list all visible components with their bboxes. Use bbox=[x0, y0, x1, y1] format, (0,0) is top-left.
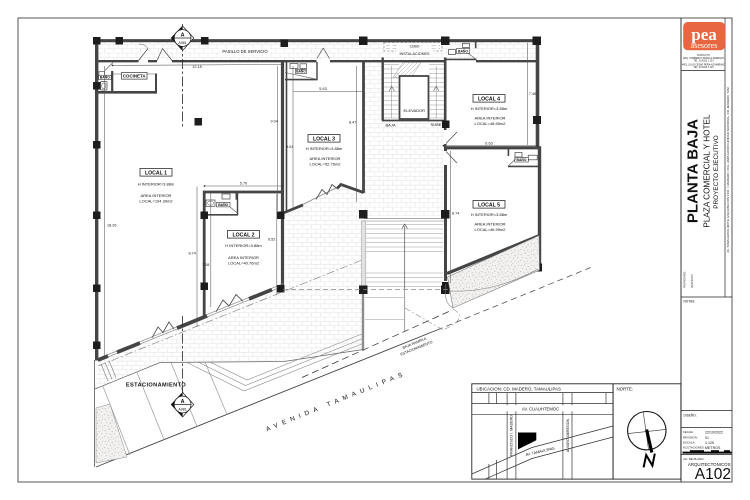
svg-text:1:125: 1:125 bbox=[705, 441, 714, 445]
svg-text:PROYECTO EJECUTIVO: PROYECTO EJECUTIVO bbox=[713, 135, 720, 208]
svg-text:PLAZA COMERCIAL Y HOTEL: PLAZA COMERCIAL Y HOTEL bbox=[703, 114, 712, 228]
svg-text:AREA INTERIOR: AREA INTERIOR bbox=[228, 255, 259, 260]
svg-text:LOCAL 2: LOCAL 2 bbox=[232, 232, 254, 238]
svg-text:AV. TAMAULIPAS 300TE, ESQUINA: AV. TAMAULIPAS 300TE, ESQUINA CON FCO. I… bbox=[726, 87, 730, 253]
svg-text:UBICACION: CD. MADERO, TAMAULI: UBICACION: CD. MADERO, TAMAULIPAS bbox=[477, 386, 561, 391]
svg-text:LOCAL=52.76m2: LOCAL=52.76m2 bbox=[309, 161, 341, 166]
svg-text:TEL: 33 8311 1 123: TEL: 33 8311 1 123 bbox=[693, 61, 714, 63]
svg-text:ARQ. JULIO CESAR PEÑA ALTAMIRA: ARQ. JULIO CESAR PEÑA ALTAMIRANO bbox=[682, 63, 725, 66]
svg-text:H INTERIOR=3.88m: H INTERIOR=3.88m bbox=[225, 243, 262, 248]
svg-text:PROPIETARIO:: PROPIETARIO: bbox=[684, 271, 687, 288]
svg-text:AREA INTERIOR: AREA INTERIOR bbox=[310, 156, 341, 161]
svg-text:TEL: 33 8123 4 123: TEL: 33 8123 4 123 bbox=[693, 67, 714, 69]
svg-text:INSTALACIONES: INSTALACIONES bbox=[399, 52, 430, 56]
svg-text:ELEVADOR: ELEVADOR bbox=[404, 108, 426, 113]
svg-text:ESCALA:: ESCALA: bbox=[683, 441, 695, 445]
svg-text:BAÑO: BAÑO bbox=[100, 75, 110, 80]
svg-text:8.47: 8.47 bbox=[349, 121, 356, 125]
svg-text:AREA INTERIOR: AREA INTERIOR bbox=[475, 116, 506, 121]
svg-text:REVISION:: REVISION: bbox=[683, 436, 698, 440]
svg-text:A: A bbox=[181, 399, 185, 405]
svg-text:H INTERIOR=3.88m: H INTERIOR=3.88m bbox=[471, 212, 508, 217]
svg-text:PROYECTO:: PROYECTO: bbox=[691, 274, 694, 288]
svg-text:SUBE: SUBE bbox=[431, 122, 442, 127]
svg-text:AREA INTERIOR: AREA INTERIOR bbox=[475, 222, 506, 227]
svg-text:CONTACTO:: CONTACTO: bbox=[697, 54, 711, 57]
svg-text:H INTERIOR=3.88m: H INTERIOR=3.88m bbox=[306, 146, 343, 151]
svg-text:DISEÑO:: DISEÑO: bbox=[684, 413, 697, 418]
svg-text:H INTERIOR=3.88m: H INTERIOR=3.88m bbox=[471, 106, 508, 111]
svg-text:LOCAL 3: LOCAL 3 bbox=[313, 136, 335, 142]
svg-text:COCINETA: COCINETA bbox=[123, 74, 146, 79]
svg-text:ESTACIONAMIENTO: ESTACIONAMIENTO bbox=[126, 383, 186, 389]
svg-text:ARQ. HUMBERTO PADILLA SERRANO: ARQ. HUMBERTO PADILLA SERRANO bbox=[683, 57, 724, 60]
svg-text:No. DE PLANO:: No. DE PLANO: bbox=[684, 457, 705, 461]
svg-text:7.08: 7.08 bbox=[202, 263, 209, 267]
svg-text:LOCAL 4: LOCAL 4 bbox=[478, 96, 500, 102]
svg-text:BAÑO: BAÑO bbox=[218, 202, 228, 207]
svg-text:12.18: 12.18 bbox=[192, 65, 202, 69]
svg-text:9.04: 9.04 bbox=[286, 145, 293, 149]
svg-text:01: 01 bbox=[705, 436, 709, 440]
svg-text:LOCAL 1: LOCAL 1 bbox=[145, 170, 167, 176]
svg-text:LOCAL=48.55m2: LOCAL=48.55m2 bbox=[474, 121, 506, 126]
svg-text:AREA INTERIOR: AREA INTERIOR bbox=[141, 193, 172, 198]
svg-text:LOCAL=194.39m2: LOCAL=194.39m2 bbox=[139, 199, 173, 204]
svg-text:22/10/2022: 22/10/2022 bbox=[705, 430, 723, 434]
svg-text:BAÑO: BAÑO bbox=[296, 69, 306, 74]
svg-text:LOCAL 5: LOCAL 5 bbox=[478, 202, 500, 208]
svg-text:LOCAL=40.76m2: LOCAL=40.76m2 bbox=[228, 260, 260, 265]
svg-text:BAJA: BAJA bbox=[385, 123, 395, 128]
svg-text:H INTERIOR=3.88m: H INTERIOR=3.88m bbox=[138, 181, 175, 186]
svg-text:A981: A981 bbox=[178, 408, 186, 412]
svg-text:PLANTA BAJA: PLANTA BAJA bbox=[685, 119, 702, 223]
svg-text:5.63: 5.63 bbox=[319, 87, 326, 91]
svg-text:8.74: 8.74 bbox=[452, 212, 459, 216]
svg-text:ACOTACIONES:: ACOTACIONES: bbox=[683, 446, 705, 450]
svg-text:AV. CUAUHTEMOC: AV. CUAUHTEMOC bbox=[522, 406, 559, 411]
svg-text:CUBO: CUBO bbox=[410, 45, 420, 49]
svg-text:METROS: METROS bbox=[705, 446, 721, 450]
svg-text:BAÑO: BAÑO bbox=[458, 48, 468, 53]
svg-text:ALVARO OBREGON: ALVARO OBREGON bbox=[566, 418, 570, 452]
svg-text:18.26: 18.26 bbox=[107, 224, 117, 228]
svg-text:FRANCISCO I. MADERO: FRANCISCO I. MADERO bbox=[510, 415, 514, 456]
svg-text:FECHA:: FECHA: bbox=[683, 430, 694, 434]
svg-text:asesores: asesores bbox=[691, 41, 718, 50]
svg-text:LOCAL=46.99m2: LOCAL=46.99m2 bbox=[474, 227, 506, 232]
svg-text:PASILLO DE SERVICIO: PASILLO DE SERVICIO bbox=[222, 49, 268, 54]
svg-text:A: A bbox=[181, 32, 185, 38]
svg-text:BAÑO: BAÑO bbox=[517, 157, 527, 162]
svg-text:6.63: 6.63 bbox=[485, 142, 492, 146]
svg-text:NOTAS:: NOTAS: bbox=[684, 300, 696, 304]
svg-text:7.46: 7.46 bbox=[529, 92, 536, 96]
svg-text:8.74: 8.74 bbox=[189, 252, 196, 256]
svg-text:6.52: 6.52 bbox=[268, 238, 275, 242]
svg-text:A981: A981 bbox=[178, 41, 186, 45]
svg-text:9.04: 9.04 bbox=[271, 120, 278, 124]
svg-text:A102: A102 bbox=[695, 466, 731, 483]
svg-text:5.70: 5.70 bbox=[240, 182, 247, 186]
svg-text:NORTE:: NORTE: bbox=[617, 386, 634, 391]
